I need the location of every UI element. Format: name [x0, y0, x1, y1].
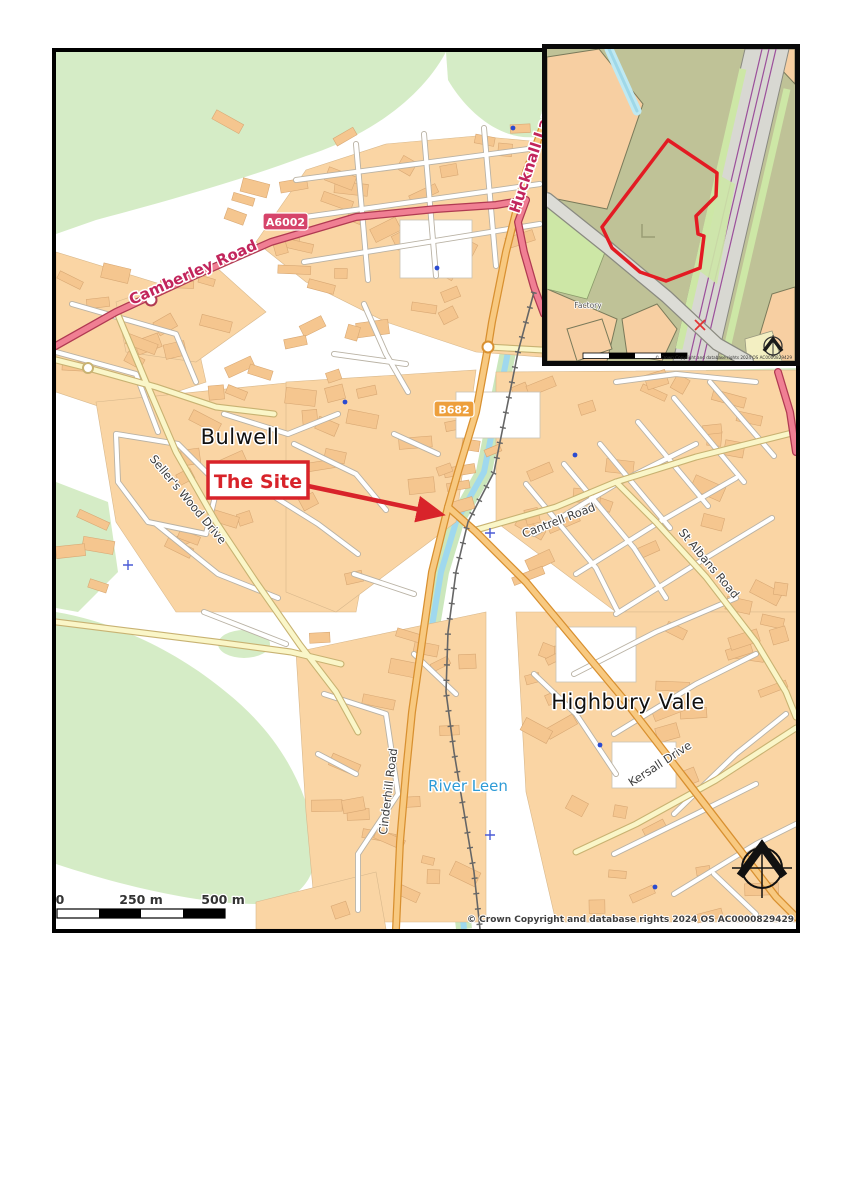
copyright-text: © Crown Copyright and database rights 20…: [467, 915, 794, 925]
label-river-leen: River Leen: [428, 777, 508, 795]
building-block: [284, 335, 308, 349]
building-block: [589, 900, 605, 914]
inset-map-canvas: Factory © Crown Copyright and database r…: [547, 49, 795, 361]
scale-zero-label: 0: [56, 892, 65, 907]
label-bulwell: Bulwell: [201, 425, 280, 449]
b682-badge-label: B682: [438, 404, 469, 417]
document-page: A6002 B682 Bulwell Highbury Vale Camberl…: [0, 0, 848, 1200]
building-block: [773, 582, 788, 596]
building-block: [299, 316, 326, 337]
building-block: [240, 178, 270, 198]
building-block: [312, 800, 343, 812]
building-block: [334, 268, 347, 278]
building-block: [309, 632, 330, 643]
a6002-badge-label: A6002: [266, 216, 305, 229]
inset-map-frame: Factory © Crown Copyright and database r…: [542, 44, 800, 366]
scale-bar: 0 250 m 500 m: [56, 892, 245, 918]
building-block: [248, 364, 273, 380]
building-block: [285, 387, 317, 406]
building-block: [427, 869, 440, 883]
route-badge-a6002: A6002: [263, 213, 308, 230]
site-callout-label: The Site: [214, 471, 302, 493]
inset-factory-label: Factory: [574, 301, 602, 310]
inset-copyright-text: © Crown Copyright and database rights 20…: [655, 355, 792, 360]
building-block: [224, 208, 247, 225]
building-block: [278, 265, 311, 275]
scale-500-label: 500 m: [201, 892, 244, 907]
route-badge-b682: B682: [434, 401, 474, 417]
label-highbury-vale: Highbury Vale: [551, 690, 705, 714]
building-block: [232, 192, 255, 206]
building-block: [345, 324, 361, 341]
minor-street: [334, 354, 406, 364]
building-block: [408, 477, 435, 495]
building-block: [608, 870, 626, 879]
building-block: [440, 163, 458, 177]
building-block: [208, 385, 224, 400]
scale-250-label: 250 m: [119, 892, 162, 907]
building-block: [458, 654, 476, 669]
building-block: [613, 805, 628, 819]
